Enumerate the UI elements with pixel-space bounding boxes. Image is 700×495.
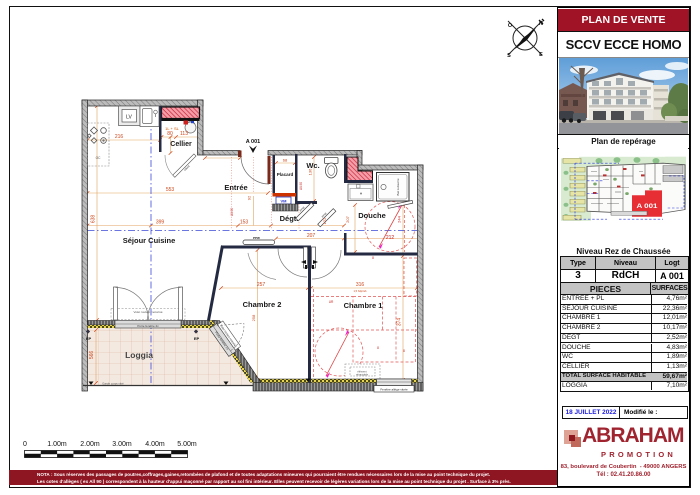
svg-text:216: 216 bbox=[115, 134, 124, 140]
svg-text:1,5 hdp/rsb: 1,5 hdp/rsb bbox=[354, 289, 368, 293]
svg-text:Cellier: Cellier bbox=[170, 141, 192, 148]
svg-text:8: 8 bbox=[403, 349, 405, 353]
svg-text:68: 68 bbox=[283, 158, 288, 163]
svg-text:O: O bbox=[508, 23, 513, 29]
svg-text:8: 8 bbox=[372, 256, 374, 260]
svg-text:Wc.: Wc. bbox=[306, 161, 319, 170]
svg-text:0: 0 bbox=[23, 441, 27, 448]
svg-text:207: 207 bbox=[307, 233, 316, 239]
svg-text:374: 374 bbox=[397, 318, 403, 327]
svg-text:S: S bbox=[507, 53, 511, 59]
svg-text:316: 316 bbox=[356, 282, 365, 288]
svg-text:638: 638 bbox=[91, 215, 97, 224]
svg-text:80: 80 bbox=[167, 131, 173, 137]
svg-text:399: 399 bbox=[156, 220, 165, 226]
svg-text:Dégt.: Dégt. bbox=[280, 214, 299, 223]
svg-text:UR: UR bbox=[329, 300, 334, 304]
svg-text:Séjour Cuisine: Séjour Cuisine bbox=[123, 236, 176, 245]
svg-text:EP: EP bbox=[86, 336, 92, 341]
svg-text:OC: OC bbox=[96, 156, 101, 160]
svg-text:Loggia: Loggia bbox=[125, 350, 153, 360]
svg-text:92: 92 bbox=[247, 195, 252, 200]
svg-text:LV: LV bbox=[126, 115, 132, 121]
svg-text:A 001: A 001 bbox=[246, 139, 260, 145]
svg-text:Chambre 2: Chambre 2 bbox=[243, 300, 282, 309]
svg-text:Garde corps vitré: Garde corps vitré bbox=[102, 381, 124, 385]
svg-text:212: 212 bbox=[386, 235, 395, 241]
svg-text:153: 153 bbox=[240, 220, 249, 226]
svg-text:VM: VM bbox=[281, 199, 288, 204]
svg-text:Douche: Douche bbox=[358, 211, 386, 220]
svg-text:122: 122 bbox=[322, 217, 327, 224]
svg-text:All.90: All.90 bbox=[299, 182, 303, 190]
svg-text:A 001: A 001 bbox=[636, 202, 657, 210]
svg-text:553: 553 bbox=[166, 187, 175, 193]
svg-text:Placard: Placard bbox=[277, 172, 294, 177]
svg-text:Bac à douche: Bac à douche bbox=[396, 178, 400, 196]
svg-text:4.00m: 4.00m bbox=[145, 441, 165, 448]
svg-text:E: E bbox=[539, 52, 543, 58]
svg-text:Chambre 1: Chambre 1 bbox=[344, 301, 383, 310]
svg-text:244: 244 bbox=[397, 215, 402, 222]
svg-text:Fenêtre allège vitrée: Fenêtre allège vitrée bbox=[380, 388, 408, 392]
svg-text:Entrée: Entrée bbox=[224, 183, 247, 192]
svg-text:Porte fenêtre 2v: Porte fenêtre 2v bbox=[137, 324, 159, 328]
svg-text:All.90: All.90 bbox=[230, 208, 234, 216]
svg-text:5.00m: 5.00m bbox=[177, 441, 197, 448]
svg-text:3.00m: 3.00m bbox=[112, 441, 132, 448]
svg-text:EP: EP bbox=[194, 336, 200, 341]
svg-text:257: 257 bbox=[257, 282, 266, 288]
svg-text:rétractable: rétractable bbox=[356, 373, 369, 377]
svg-text:2.00m: 2.00m bbox=[80, 441, 100, 448]
svg-text:207: 207 bbox=[345, 215, 350, 222]
svg-text:N: N bbox=[539, 21, 543, 27]
svg-text:566: 566 bbox=[89, 351, 95, 360]
svg-text:113: 113 bbox=[180, 131, 188, 137]
svg-text:PPW: PPW bbox=[253, 236, 260, 240]
svg-text:258: 258 bbox=[251, 314, 256, 321]
svg-text:1.00m: 1.00m bbox=[47, 441, 67, 448]
svg-text:8: 8 bbox=[377, 346, 379, 350]
